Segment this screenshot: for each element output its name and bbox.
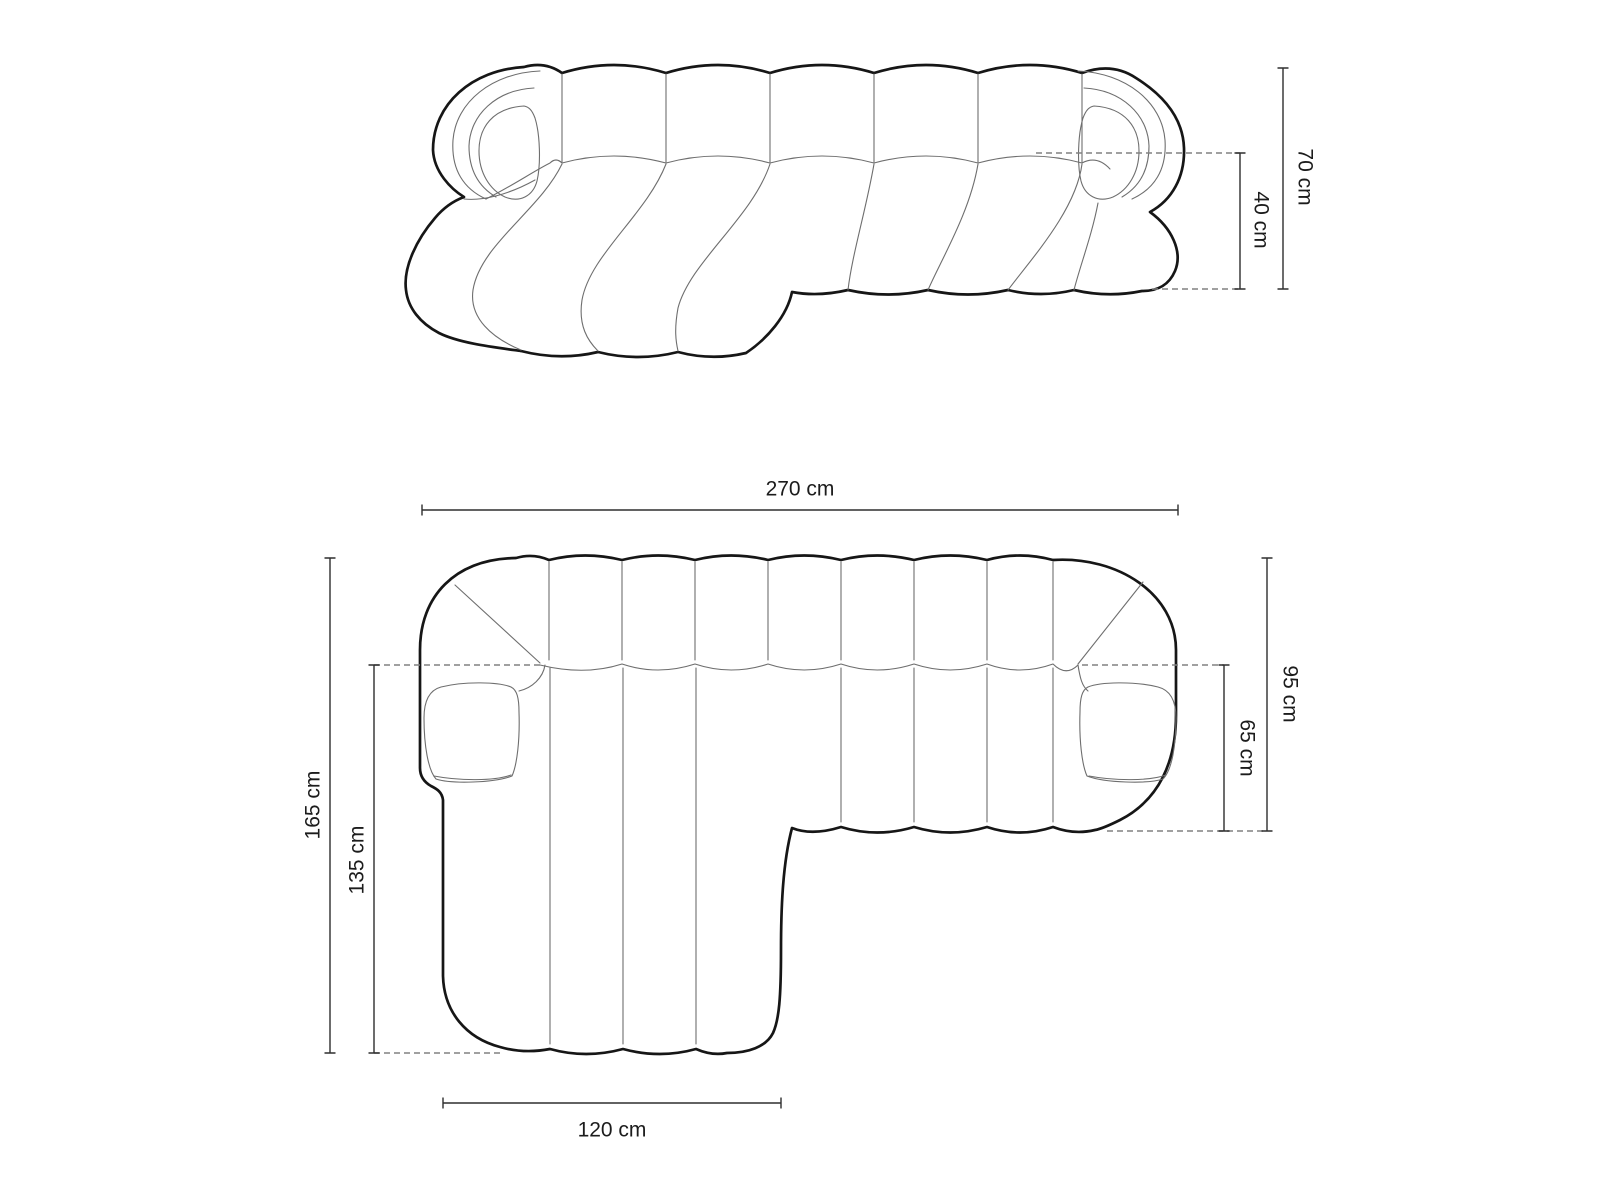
plan-dimension-chaise-depth: 135 cm	[346, 665, 380, 1053]
front-seat-channel-2	[928, 164, 978, 290]
plan-right-corner-seat-curve	[1078, 665, 1088, 691]
front-sofa-silhouette	[406, 65, 1184, 357]
front-right-arm-front-crease	[1074, 203, 1098, 290]
front-dimension-total-height-line	[1278, 68, 1289, 289]
plan-dimension-total-depth-line	[325, 558, 336, 1053]
front-left-armrest-swirl-inner	[479, 106, 539, 199]
plan-sofa-silhouette	[420, 556, 1176, 1055]
plan-dimension-body-depth-label: 95 cm	[1279, 665, 1302, 722]
front-dimension-seat-height-label: 40 cm	[1250, 191, 1273, 248]
plan-back-channel-dividers	[549, 562, 1053, 660]
front-right-armrest-swirl-middle	[1084, 88, 1149, 197]
plan-left-corner-crease	[455, 585, 540, 663]
front-left-arm-crease	[464, 180, 535, 199]
plan-dimension-total-width-line	[422, 505, 1178, 516]
plan-right-armrest-cushion	[1080, 683, 1176, 782]
plan-left-armrest-cushion	[424, 683, 519, 782]
front-seat-back-boundary	[486, 156, 1110, 199]
plan-dimension-total-width: 270 cm	[422, 478, 1178, 516]
plan-dimension-chaise-depth-line	[369, 665, 380, 1053]
diagram-canvas: 70 cm 40 cm	[0, 0, 1600, 1200]
plan-dimension-total-width-label: 270 cm	[766, 478, 835, 501]
front-chaise-channel-1	[473, 164, 562, 350]
plan-dimension-chaise-width-line	[443, 1098, 781, 1109]
front-chaise-channel-3	[676, 164, 770, 351]
plan-dimension-total-depth: 165 cm	[302, 558, 336, 1053]
plan-seat-channel-dividers	[841, 668, 1053, 822]
front-seat-channel-1	[848, 164, 874, 290]
plan-dimension-chaise-width-label: 120 cm	[578, 1119, 647, 1142]
plan-left-corner-seat-curve	[519, 665, 545, 691]
front-view: 70 cm 40 cm	[406, 65, 1317, 357]
plan-right-armrest-seam	[1089, 775, 1166, 780]
plan-right-corner-crease	[1078, 582, 1143, 664]
plan-seat-back-boundary	[540, 664, 1078, 671]
front-left-armrest-swirl-outer	[453, 71, 540, 199]
front-dimension-total-height: 70 cm	[1278, 68, 1317, 289]
front-dimension-total-height-label: 70 cm	[1294, 148, 1317, 205]
plan-dimension-body-depth: 95 cm	[1262, 558, 1302, 831]
front-dimension-seat-height-line	[1235, 153, 1246, 289]
front-dimension-seat-height: 40 cm	[1235, 153, 1273, 289]
plan-dimension-chaise-width: 120 cm	[443, 1098, 781, 1142]
sofa-dimension-drawing: 70 cm 40 cm	[0, 0, 1600, 1200]
front-left-armrest-swirl-middle	[469, 88, 534, 197]
top-view: 270 cm 165 cm 135 cm 95 cm 65 cm 120 cm	[302, 478, 1302, 1142]
plan-dimension-seat-depth-label: 65 cm	[1236, 719, 1259, 776]
plan-dimension-body-depth-line	[1262, 558, 1273, 831]
plan-dimension-seat-depth: 65 cm	[1219, 665, 1259, 831]
front-seat-channel-3	[1008, 164, 1082, 290]
plan-dimension-chaise-depth-label: 135 cm	[346, 826, 369, 895]
plan-dimension-seat-depth-line	[1219, 665, 1230, 831]
front-chaise-channel-2	[581, 164, 666, 351]
plan-dimension-total-depth-label: 165 cm	[302, 771, 325, 840]
plan-chaise-channel-dividers	[550, 668, 696, 1044]
front-back-channel-dividers	[562, 74, 1082, 162]
